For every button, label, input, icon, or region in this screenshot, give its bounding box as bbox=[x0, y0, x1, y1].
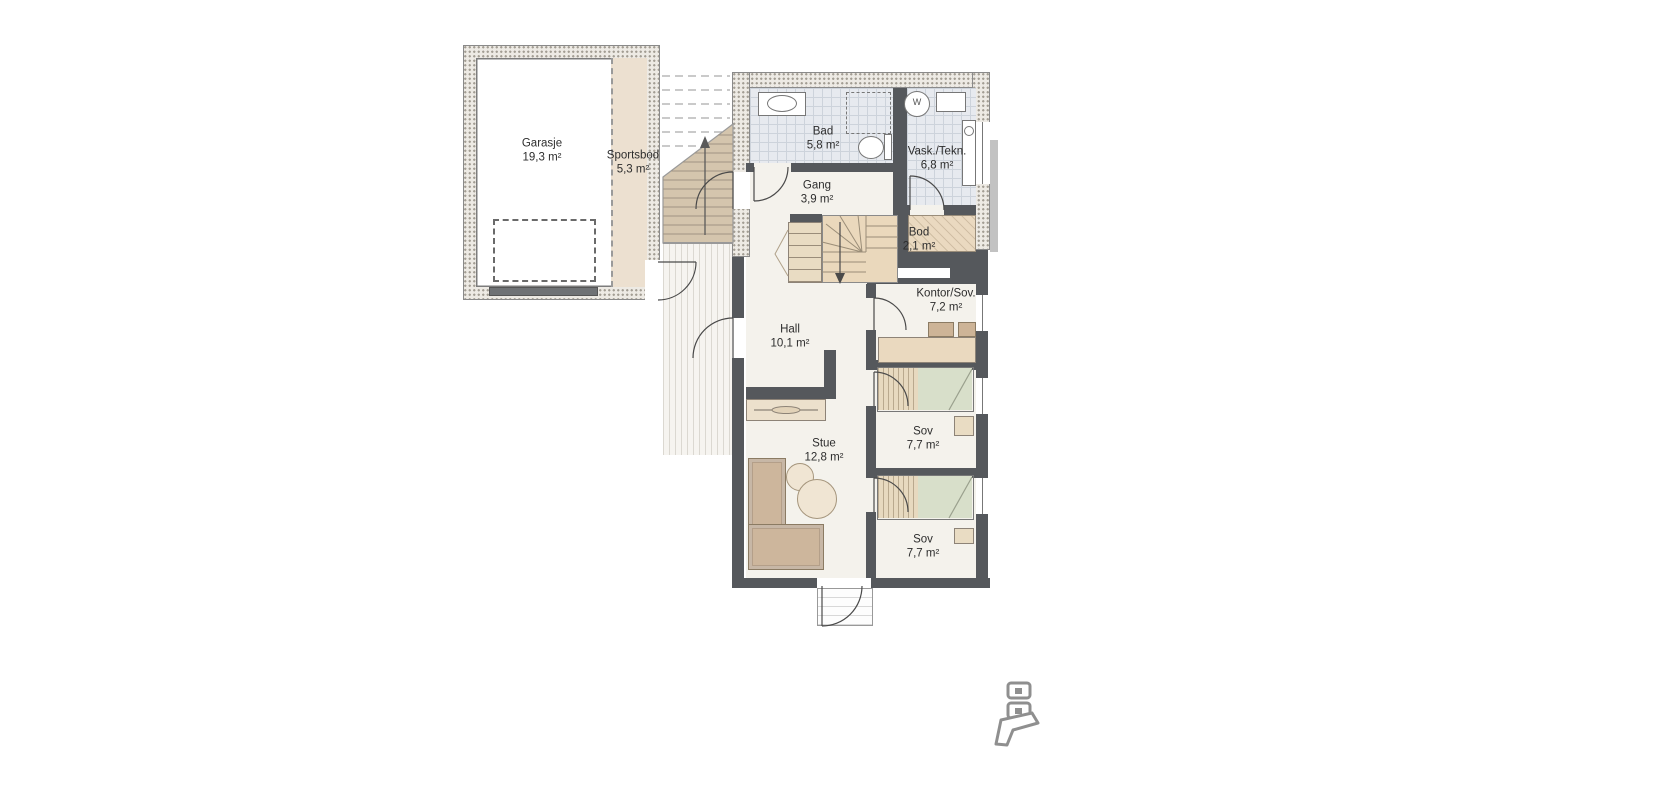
label-bod: Bod 2,1 m² bbox=[903, 227, 936, 254]
room-area: 7,7 m² bbox=[907, 547, 940, 559]
stair-up-arrow-head bbox=[700, 136, 710, 148]
wall-protrusion-right bbox=[990, 140, 998, 252]
window-sov1 bbox=[976, 378, 988, 414]
bed-2-mattress bbox=[918, 476, 972, 518]
room-name: Sov bbox=[913, 534, 933, 546]
room-name: Gang bbox=[803, 180, 831, 192]
office-chair-2 bbox=[958, 322, 976, 337]
stue-sov1-wall bbox=[866, 406, 876, 468]
bed-1 bbox=[877, 367, 974, 412]
room-area: 10,1 m² bbox=[771, 337, 810, 349]
label-garasje: Garasje 19,3 m² bbox=[522, 138, 562, 165]
room-area: 5,3 m² bbox=[617, 163, 650, 175]
bad-wall-a bbox=[746, 163, 754, 172]
garage-door-clearance-dashed bbox=[493, 219, 596, 282]
dryer-appliance bbox=[936, 92, 966, 112]
office-chair-1 bbox=[928, 322, 954, 337]
stair-closet-shelves bbox=[788, 222, 822, 283]
garage-door bbox=[489, 287, 598, 296]
outdoor-deck bbox=[663, 243, 732, 455]
sofa-bottom-arm bbox=[748, 524, 824, 570]
room-name: Sportsbod bbox=[607, 150, 659, 162]
room-name: Vask./Tekn. bbox=[908, 146, 967, 158]
room-name: Bod bbox=[909, 227, 929, 239]
window-sov2 bbox=[976, 478, 988, 514]
interior-staircase bbox=[822, 215, 898, 283]
house-wall-bottom-b bbox=[871, 578, 990, 588]
label-bad: Bad 5,8 m² bbox=[807, 126, 840, 153]
toilet-tank bbox=[884, 134, 892, 160]
stue-sov2-wall bbox=[866, 512, 876, 578]
bed-2 bbox=[877, 475, 974, 520]
office-desk bbox=[878, 337, 976, 363]
room-name: Hall bbox=[780, 324, 800, 336]
label-gang: Gang 3,9 m² bbox=[801, 180, 834, 207]
kontor-wall-a bbox=[866, 284, 876, 298]
builder-logo bbox=[996, 683, 1038, 745]
sportsbod-door-opening bbox=[645, 260, 662, 300]
shower-zone-dashed bbox=[846, 92, 891, 134]
room-area: 7,2 m² bbox=[930, 301, 963, 313]
label-vask-tekn: Vask./Tekn. 6,8 m² bbox=[908, 146, 967, 173]
label-hall: Hall 10,1 m² bbox=[771, 324, 810, 351]
entrance-porch-steps bbox=[817, 588, 873, 626]
house-wall-right-d bbox=[976, 514, 988, 578]
vask-wall-b bbox=[944, 205, 976, 215]
entry-door-opening-upper bbox=[731, 172, 750, 209]
room-name: Stue bbox=[812, 438, 836, 450]
room-area: 5,8 m² bbox=[807, 139, 840, 151]
house-wall-top bbox=[732, 72, 990, 88]
toilet-bowl bbox=[858, 136, 884, 159]
room-name: Garasje bbox=[522, 138, 562, 150]
room-area: 3,9 m² bbox=[801, 193, 834, 205]
door-entry-upper bbox=[696, 172, 733, 209]
exterior-stairs bbox=[663, 124, 733, 243]
house-wall-left-lower-a bbox=[732, 257, 744, 318]
bed-1-mattress bbox=[918, 368, 972, 410]
side-table-large bbox=[797, 479, 837, 519]
bed-1-pillow bbox=[878, 368, 918, 410]
label-sportsbod: Sportsbod 5,3 m² bbox=[607, 150, 659, 177]
room-area: 2,1 m² bbox=[903, 240, 936, 252]
label-sov-2: Sov 7,7 m² bbox=[907, 534, 940, 561]
bed-2-pillow bbox=[878, 476, 918, 518]
window-kontor bbox=[976, 295, 988, 331]
label-kontor-sov: Kontor/Sov. 7,2 m² bbox=[916, 288, 975, 315]
nightstand-2 bbox=[954, 528, 974, 544]
overhang-dashed-lines bbox=[662, 76, 730, 146]
bod-bottom-wall bbox=[898, 252, 976, 262]
bathroom-sink bbox=[767, 95, 797, 112]
nightstand-1 bbox=[954, 416, 974, 436]
washing-machine-label: W bbox=[905, 97, 929, 107]
house-wall-right-a bbox=[976, 250, 988, 295]
room-name: Kontor/Sov. bbox=[916, 288, 975, 300]
label-sov-1: Sov 7,7 m² bbox=[907, 426, 940, 453]
room-name: Sov bbox=[913, 426, 933, 438]
tv-bench bbox=[746, 399, 826, 421]
washing-machine-icon: W bbox=[904, 91, 930, 117]
vask-wall-a bbox=[893, 205, 910, 215]
house-wall-right-b bbox=[976, 331, 988, 378]
room-area: 6,8 m² bbox=[921, 159, 954, 171]
room-area: 7,7 m² bbox=[907, 439, 940, 451]
house-wall-bottom-a bbox=[732, 578, 817, 588]
hall-stue-wall bbox=[746, 387, 836, 399]
label-stue: Stue 12,8 m² bbox=[805, 438, 844, 465]
hall-stue-wall-stub bbox=[824, 350, 836, 399]
floor-plan-canvas: W bbox=[0, 0, 1670, 800]
window-vask bbox=[974, 122, 990, 184]
room-area: 12,8 m² bbox=[805, 451, 844, 463]
house-wall-left-lower-b bbox=[732, 358, 744, 578]
room-area: 19,3 m² bbox=[523, 151, 562, 163]
room-name: Bad bbox=[813, 126, 833, 138]
vask-sink bbox=[964, 126, 974, 136]
bad-wall-b bbox=[791, 163, 893, 172]
